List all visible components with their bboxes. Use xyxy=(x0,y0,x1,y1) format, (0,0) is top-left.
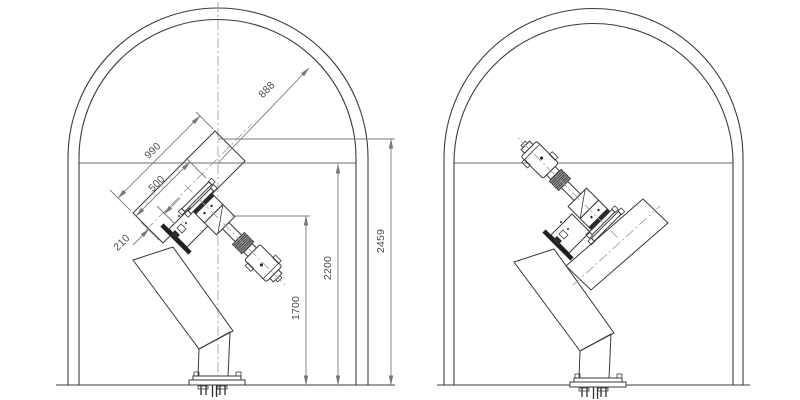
ext-210-b xyxy=(157,206,175,224)
dimline-500 xyxy=(136,162,190,216)
dimension-label-2459: 2459 xyxy=(375,229,387,253)
ext-210-a xyxy=(141,222,159,240)
dimline-210-tail-a xyxy=(133,229,149,245)
view-left: 990 500 210 888 1700 2200 2459 xyxy=(56,2,395,397)
machine-base xyxy=(514,249,626,399)
ext-990-lower xyxy=(110,190,131,211)
dimensions-left: 990 500 210 888 1700 2200 2459 xyxy=(110,68,395,385)
dimension-label-arch-radius: 888 xyxy=(256,79,277,100)
view-right xyxy=(437,8,750,399)
machine-left xyxy=(133,124,302,397)
cad-canvas: 990 500 210 888 1700 2200 2459 xyxy=(0,0,800,400)
dimension-label-2200: 2200 xyxy=(322,256,334,280)
dimension-label-500: 500 xyxy=(146,173,167,194)
radius-leader xyxy=(218,68,309,163)
dimension-label-210: 210 xyxy=(111,232,132,253)
ext-500-upper xyxy=(186,158,206,178)
dimension-label-990: 990 xyxy=(142,140,163,161)
dimline-210-tail-b xyxy=(164,198,180,214)
machine-base xyxy=(133,247,245,397)
cad-drawing: 990 500 210 888 1700 2200 2459 xyxy=(0,0,800,400)
ext-990-upper xyxy=(196,112,213,129)
dimension-label-1700: 1700 xyxy=(290,296,302,320)
tunnel-left xyxy=(56,8,395,385)
